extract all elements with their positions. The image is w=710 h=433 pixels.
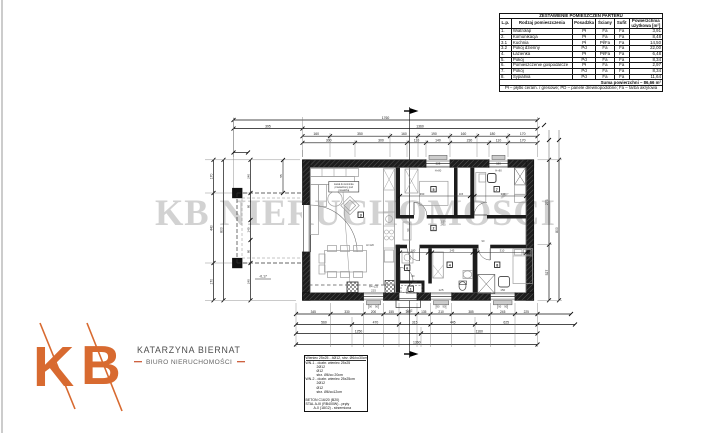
svg-text:90: 90 [369, 305, 372, 309]
svg-text:posadzką: posadzką [338, 189, 349, 192]
svg-text:KATARZYNA BIERNAT: KATARZYNA BIERNAT [137, 345, 241, 355]
svg-text:225: 225 [371, 289, 376, 293]
svg-text:90: 90 [498, 305, 501, 309]
svg-text:110: 110 [496, 139, 502, 143]
svg-text:-0,17: -0,17 [259, 275, 267, 279]
svg-text:395: 395 [265, 124, 271, 128]
svg-text:80: 80 [246, 250, 250, 254]
svg-text:7: 7 [496, 188, 498, 192]
svg-text:140: 140 [435, 139, 441, 143]
svg-text:180: 180 [490, 132, 496, 136]
svg-text:90: 90 [482, 239, 485, 243]
svg-text:1250: 1250 [355, 329, 363, 333]
svg-text:385: 385 [468, 310, 474, 314]
svg-text:110: 110 [414, 139, 420, 143]
svg-text:350: 350 [357, 132, 363, 136]
svg-text:300: 300 [501, 192, 506, 196]
svg-text:1160: 1160 [476, 329, 483, 333]
svg-text:170: 170 [209, 279, 213, 285]
svg-text:90: 90 [504, 305, 507, 309]
svg-text:300: 300 [378, 139, 384, 143]
svg-text:200: 200 [371, 310, 377, 314]
svg-text:1760: 1760 [382, 116, 390, 120]
svg-text:5: 5 [433, 188, 435, 192]
svg-text:170: 170 [520, 132, 526, 136]
svg-text:445: 445 [450, 320, 456, 324]
svg-text:6: 6 [406, 266, 408, 270]
svg-text:125: 125 [438, 288, 443, 292]
svg-text:90: 90 [437, 305, 440, 309]
svg-text:55: 55 [279, 174, 283, 178]
svg-text:80: 80 [246, 205, 250, 209]
svg-text:115: 115 [459, 192, 464, 196]
svg-text:-0,02: -0,02 [406, 309, 413, 313]
svg-text:90: 90 [443, 305, 446, 309]
svg-text:155: 155 [389, 310, 395, 314]
svg-text:160: 160 [313, 132, 319, 136]
svg-text:800: 800 [555, 227, 559, 233]
svg-text:160: 160 [401, 132, 407, 136]
svg-text:800: 800 [219, 227, 223, 233]
svg-text:190: 190 [431, 132, 437, 136]
svg-text:245: 245 [450, 248, 455, 252]
svg-text:330: 330 [344, 310, 350, 314]
svg-text:273: 273 [545, 199, 549, 205]
svg-text:210: 210 [438, 310, 444, 314]
svg-text:90: 90 [375, 305, 378, 309]
svg-text:560: 560 [321, 320, 327, 324]
svg-text:4: 4 [449, 263, 451, 267]
svg-text:170: 170 [520, 139, 526, 143]
svg-text:180: 180 [411, 248, 416, 252]
svg-text:3: 3 [360, 213, 362, 217]
svg-text:160: 160 [461, 132, 467, 136]
svg-text:80: 80 [412, 274, 415, 278]
svg-text:135: 135 [421, 310, 427, 314]
svg-text:230: 230 [467, 139, 473, 143]
svg-text:1360: 1360 [416, 124, 424, 128]
svg-text:H+80: H+80 [495, 168, 502, 172]
svg-text:527: 527 [545, 270, 549, 276]
svg-text:K: K [33, 335, 74, 399]
svg-text:H+80: H+80 [435, 168, 442, 172]
svg-text:225: 225 [436, 162, 441, 166]
svg-text:140: 140 [246, 227, 250, 232]
svg-text:245: 245 [500, 310, 506, 314]
svg-text:625: 625 [503, 320, 509, 324]
svg-text:345: 345 [311, 310, 317, 314]
svg-text:150: 150 [496, 162, 501, 166]
svg-text:2: 2 [433, 227, 435, 231]
svg-text:470: 470 [373, 320, 379, 324]
svg-text:2.05: 2.05 [440, 223, 446, 227]
svg-text:8: 8 [496, 263, 498, 267]
svg-text:1: 1 [410, 287, 412, 291]
svg-text:440: 440 [209, 225, 213, 231]
svg-text:300: 300 [326, 139, 332, 143]
svg-text:240: 240 [246, 279, 250, 284]
svg-text:170: 170 [209, 173, 213, 179]
svg-text:BIURO NIERUCHOMOŚCI: BIURO NIERUCHOMOŚCI [146, 357, 232, 366]
svg-text:B: B [81, 334, 121, 396]
svg-text:H=120: H=120 [366, 243, 374, 247]
svg-text:225: 225 [524, 310, 530, 314]
svg-text:310: 310 [500, 248, 505, 252]
svg-text:240: 240 [246, 174, 250, 179]
svg-text:360: 360 [420, 192, 425, 196]
svg-text:150: 150 [500, 288, 505, 292]
